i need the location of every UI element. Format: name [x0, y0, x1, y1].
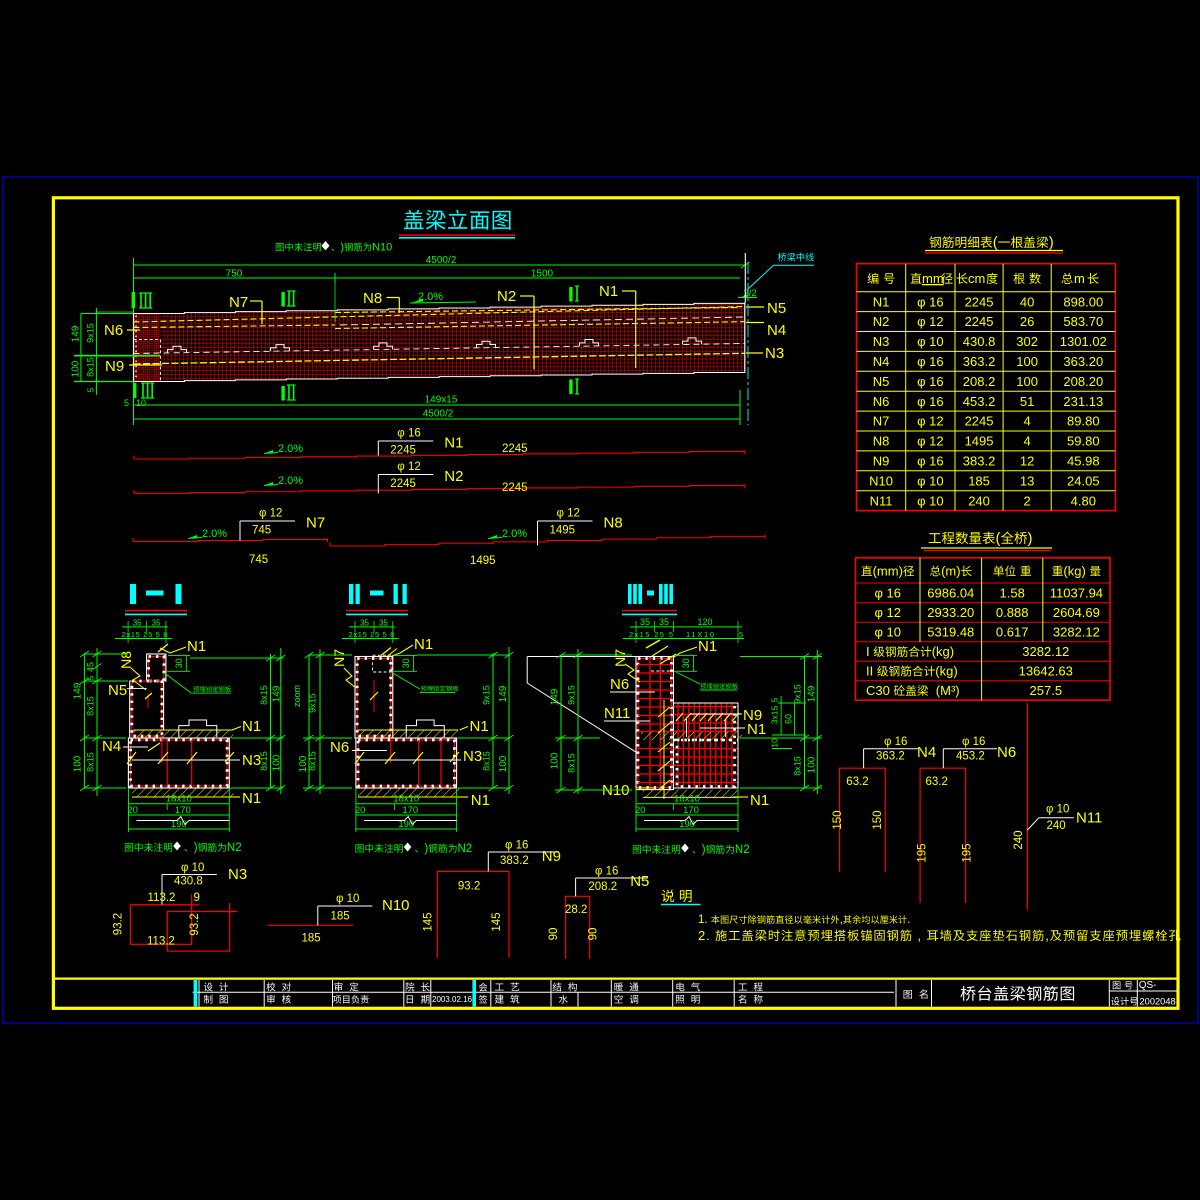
- svg-text:35: 35: [379, 619, 388, 628]
- svg-text:N1: N1: [698, 638, 717, 655]
- svg-text:zoom: zoom: [292, 685, 302, 707]
- svg-text:8x15: 8x15: [259, 685, 269, 705]
- svg-text:100: 100: [550, 752, 561, 769]
- svg-text:1.58: 1.58: [1000, 585, 1025, 600]
- svg-text:100: 100: [73, 755, 84, 772]
- svg-text:100: 100: [272, 754, 283, 771]
- svg-text:2604.69: 2604.69: [1053, 605, 1100, 620]
- svg-text:QS-: QS-: [1139, 980, 1157, 991]
- svg-text:N2: N2: [227, 842, 242, 854]
- svg-text:(M³): (M³): [936, 683, 960, 698]
- svg-text:13642.63: 13642.63: [1019, 663, 1073, 678]
- svg-text:363.2: 363.2: [876, 751, 905, 763]
- svg-text:φ 16: φ 16: [874, 585, 901, 600]
- svg-text:583.70: 583.70: [1063, 314, 1103, 329]
- svg-text:93.2: 93.2: [113, 913, 125, 935]
- svg-text:100: 100: [71, 360, 82, 377]
- svg-text:1301.02: 1301.02: [1060, 334, 1107, 349]
- svg-text:20: 20: [635, 805, 646, 816]
- svg-text:10: 10: [136, 398, 146, 408]
- svg-text:N6: N6: [610, 676, 629, 693]
- svg-text:745: 745: [252, 525, 271, 537]
- svg-text:N2: N2: [873, 314, 890, 329]
- svg-text:2.0%: 2.0%: [202, 528, 227, 540]
- svg-text:(kg): (kg): [935, 664, 957, 679]
- svg-text:φ 10: φ 10: [917, 493, 944, 508]
- svg-text:30: 30: [401, 658, 411, 668]
- svg-text:2245: 2245: [965, 314, 994, 329]
- svg-text:120: 120: [697, 617, 712, 627]
- svg-text:185: 185: [968, 473, 990, 488]
- svg-text:2: 2: [1024, 493, 1031, 508]
- svg-text:9x15: 9x15: [567, 685, 577, 705]
- svg-text:N11: N11: [1076, 810, 1102, 827]
- svg-text:63.2: 63.2: [926, 776, 948, 788]
- svg-text:N7: N7: [306, 515, 325, 532]
- svg-text:m: m: [1074, 271, 1085, 286]
- svg-text:100: 100: [498, 755, 509, 772]
- svg-text:φ 16: φ 16: [962, 736, 985, 748]
- svg-text:N3: N3: [228, 866, 247, 883]
- svg-text:100: 100: [1016, 374, 1038, 389]
- svg-text:898.00: 898.00: [1063, 294, 1103, 309]
- svg-text:149: 149: [807, 685, 818, 702]
- svg-text:257.5: 257.5: [1030, 683, 1063, 698]
- svg-text:5: 5: [87, 675, 96, 680]
- svg-text:60: 60: [783, 714, 793, 724]
- svg-text:195: 195: [917, 843, 929, 862]
- svg-text:φ 16: φ 16: [505, 840, 528, 852]
- svg-text:149: 149: [272, 685, 283, 702]
- svg-text:35: 35: [360, 619, 369, 628]
- svg-text:12: 12: [1020, 454, 1034, 469]
- svg-text:N8: N8: [873, 434, 890, 449]
- svg-text:,: ,: [1045, 928, 1049, 943]
- svg-text:149: 149: [73, 682, 84, 699]
- svg-text:170: 170: [175, 805, 191, 816]
- svg-text:8x15: 8x15: [793, 756, 803, 776]
- svg-text:N10: N10: [382, 897, 410, 914]
- svg-text:4500/2: 4500/2: [423, 409, 454, 420]
- svg-text:59.80: 59.80: [1067, 434, 1100, 449]
- svg-text:mm: mm: [922, 271, 944, 286]
- svg-text:): ): [424, 843, 428, 855]
- svg-text:N9: N9: [873, 454, 890, 469]
- svg-text:N1: N1: [471, 792, 490, 809]
- svg-text:N4: N4: [102, 738, 121, 755]
- svg-text:φ 12: φ 12: [259, 508, 282, 520]
- svg-text:113.2: 113.2: [147, 936, 175, 948]
- svg-text:N10: N10: [602, 782, 630, 799]
- svg-text:149: 149: [71, 325, 82, 342]
- svg-text:5319.48: 5319.48: [927, 624, 974, 639]
- svg-text:3282.12: 3282.12: [1022, 644, 1069, 659]
- svg-text:φ 10: φ 10: [181, 862, 204, 874]
- svg-text:I: I: [866, 644, 870, 659]
- svg-text:5: 5: [124, 398, 129, 408]
- svg-text:383.2: 383.2: [963, 454, 996, 469]
- svg-text:1.: 1.: [698, 914, 708, 926]
- svg-text:113.2: 113.2: [148, 892, 176, 904]
- svg-text:2245: 2245: [502, 482, 528, 494]
- svg-text:1500: 1500: [531, 269, 554, 280]
- svg-text:2.: 2.: [698, 928, 711, 943]
- svg-text:185: 185: [331, 911, 350, 923]
- svg-text:N3: N3: [463, 748, 482, 765]
- svg-text:2.0%: 2.0%: [278, 443, 303, 455]
- svg-text:N5: N5: [108, 682, 127, 699]
- svg-text:8x15: 8x15: [567, 753, 577, 773]
- svg-text:): ): [1028, 530, 1033, 547]
- svg-text:35: 35: [659, 617, 669, 627]
- svg-text:φ 16: φ 16: [884, 736, 907, 748]
- svg-text:N6: N6: [873, 394, 890, 409]
- svg-text:11037.94: 11037.94: [1050, 585, 1103, 600]
- svg-text:51: 51: [1020, 394, 1034, 409]
- svg-text:N10: N10: [869, 473, 893, 488]
- svg-text:149: 149: [498, 685, 509, 702]
- svg-text:φ 16: φ 16: [917, 374, 944, 389]
- svg-text:N10: N10: [372, 242, 392, 254]
- svg-text:): ): [340, 242, 344, 254]
- svg-text:N11: N11: [604, 705, 630, 722]
- svg-text:φ 12: φ 12: [397, 461, 420, 473]
- svg-text:2.0%: 2.0%: [278, 475, 303, 487]
- svg-text:4: 4: [1024, 434, 1031, 449]
- svg-text:φ 16: φ 16: [917, 294, 944, 309]
- svg-text:φ 12: φ 12: [917, 314, 944, 329]
- svg-text:6986.04: 6986.04: [927, 585, 974, 600]
- svg-text:(kg): (kg): [1063, 563, 1085, 578]
- svg-text:8x15: 8x15: [308, 751, 318, 771]
- svg-text:149: 149: [550, 688, 561, 705]
- svg-text:II: II: [866, 664, 873, 679]
- svg-text:(: (: [993, 234, 998, 251]
- svg-text:35: 35: [152, 619, 161, 628]
- svg-text:φ 12: φ 12: [557, 508, 580, 520]
- svg-text:N1: N1: [599, 283, 618, 300]
- svg-text:5: 5: [771, 697, 780, 702]
- svg-text:N1: N1: [242, 718, 261, 735]
- svg-text:383.2: 383.2: [500, 855, 529, 867]
- svg-text:302: 302: [1016, 334, 1038, 349]
- svg-text:9x15: 9x15: [86, 323, 96, 343]
- svg-text:30: 30: [681, 658, 691, 668]
- svg-text:5: 5: [739, 630, 743, 639]
- svg-text:4.80: 4.80: [1071, 493, 1096, 508]
- svg-text:N6: N6: [997, 744, 1016, 761]
- svg-text:N6: N6: [104, 322, 123, 339]
- svg-text:45: 45: [86, 662, 96, 672]
- svg-text:240: 240: [1047, 820, 1066, 832]
- svg-text:90: 90: [548, 928, 560, 941]
- svg-text:N1: N1: [187, 638, 206, 655]
- svg-text:4500/2: 4500/2: [426, 255, 457, 266]
- svg-text:18x10: 18x10: [674, 794, 700, 805]
- svg-text:745: 745: [249, 554, 268, 566]
- svg-text:φ 16: φ 16: [917, 454, 944, 469]
- svg-text:φ 12: φ 12: [874, 605, 901, 620]
- svg-text:N4: N4: [917, 744, 936, 761]
- svg-text:): ): [1049, 234, 1054, 251]
- svg-text:φ 12: φ 12: [917, 434, 944, 449]
- svg-text:): ): [194, 842, 198, 854]
- svg-text:φ 10: φ 10: [1046, 804, 1069, 816]
- svg-text:(: (: [996, 530, 1001, 547]
- svg-text:N8: N8: [118, 651, 134, 669]
- svg-text:231.13: 231.13: [1063, 394, 1103, 409]
- svg-text:35: 35: [133, 619, 142, 628]
- svg-text:N8: N8: [604, 515, 623, 532]
- svg-text:2002048: 2002048: [1140, 996, 1176, 1006]
- svg-text:208.2: 208.2: [588, 881, 617, 893]
- svg-text:100: 100: [1016, 354, 1038, 369]
- svg-text:430.8: 430.8: [174, 876, 203, 888]
- svg-text:N9: N9: [542, 848, 561, 865]
- svg-text:93.2: 93.2: [458, 881, 480, 893]
- svg-text:N11: N11: [870, 493, 893, 508]
- svg-text:150: 150: [872, 810, 884, 829]
- svg-text:63.2: 63.2: [846, 776, 868, 788]
- svg-text:): ): [702, 844, 706, 856]
- svg-text:8x15: 8x15: [86, 752, 96, 772]
- svg-text:N1: N1: [470, 718, 489, 735]
- svg-text:N2: N2: [444, 468, 463, 485]
- svg-text:240: 240: [1013, 830, 1025, 849]
- svg-text:9x15: 9x15: [308, 693, 318, 713]
- svg-text:2245: 2245: [965, 414, 994, 429]
- svg-text:150: 150: [832, 810, 844, 829]
- svg-text:N1: N1: [747, 721, 766, 738]
- svg-text:N1: N1: [873, 294, 890, 309]
- svg-text:185: 185: [302, 933, 321, 945]
- svg-text:18x10: 18x10: [393, 794, 419, 805]
- svg-text:453.2: 453.2: [963, 394, 996, 409]
- svg-text:2.0%: 2.0%: [502, 528, 527, 540]
- svg-text:2245: 2245: [965, 294, 994, 309]
- svg-text:9: 9: [194, 892, 200, 904]
- svg-text:N5: N5: [873, 374, 890, 389]
- svg-text:363.2: 363.2: [963, 354, 996, 369]
- svg-text:φ 16: φ 16: [917, 354, 944, 369]
- svg-text:N1: N1: [750, 792, 769, 809]
- svg-text:208.20: 208.20: [1063, 374, 1103, 389]
- svg-text:φ 16: φ 16: [397, 428, 420, 440]
- svg-text:cm: cm: [968, 271, 985, 286]
- svg-text:N4: N4: [767, 322, 786, 339]
- svg-text:8x15: 8x15: [482, 751, 492, 771]
- svg-text:1495: 1495: [965, 434, 994, 449]
- svg-text:35: 35: [640, 617, 650, 627]
- svg-text:3x15: 3x15: [770, 705, 780, 724]
- svg-text:N9: N9: [105, 358, 124, 375]
- svg-text:2245: 2245: [390, 478, 416, 490]
- svg-text:5: 5: [87, 387, 96, 392]
- svg-text:2245: 2245: [502, 443, 528, 455]
- svg-text:45.98: 45.98: [1067, 454, 1100, 469]
- svg-text:750: 750: [226, 269, 243, 280]
- svg-text:N7: N7: [331, 649, 347, 667]
- svg-text:208.2: 208.2: [963, 374, 996, 389]
- svg-text:φ 10: φ 10: [874, 624, 901, 639]
- svg-text:N2: N2: [497, 288, 516, 305]
- svg-text:N4: N4: [873, 354, 890, 369]
- svg-text:(kg): (kg): [932, 644, 954, 659]
- svg-text:26: 26: [1020, 314, 1034, 329]
- svg-text:4: 4: [1024, 414, 1031, 429]
- svg-text:240: 240: [968, 493, 990, 508]
- svg-text:100: 100: [807, 756, 818, 773]
- svg-text:24.05: 24.05: [1067, 473, 1100, 488]
- svg-text:2003.02.16: 2003.02.16: [432, 995, 473, 1004]
- svg-text:N3: N3: [873, 334, 890, 349]
- svg-text:453.2: 453.2: [956, 751, 985, 763]
- svg-text:N1: N1: [242, 790, 261, 807]
- svg-text:8x15: 8x15: [86, 696, 96, 716]
- svg-text:145: 145: [491, 912, 503, 931]
- svg-text:40: 40: [1020, 294, 1034, 309]
- svg-text:1495: 1495: [470, 555, 496, 567]
- svg-text:195: 195: [962, 843, 974, 862]
- svg-text:149x15: 149x15: [425, 395, 458, 406]
- svg-text:9x15: 9x15: [793, 684, 803, 704]
- svg-text:89.80: 89.80: [1067, 414, 1100, 429]
- svg-text:1495: 1495: [550, 525, 576, 537]
- svg-text:,: ,: [918, 928, 922, 943]
- svg-text:170: 170: [402, 805, 418, 816]
- svg-text:13: 13: [1020, 473, 1034, 488]
- svg-text:N7: N7: [873, 414, 890, 429]
- svg-text:(m): (m): [941, 563, 961, 578]
- svg-text:145: 145: [423, 912, 435, 931]
- svg-text:28.2: 28.2: [565, 904, 587, 916]
- svg-text:90: 90: [588, 928, 600, 941]
- svg-text:8x15: 8x15: [259, 751, 269, 771]
- svg-text:N1: N1: [414, 636, 433, 653]
- svg-text:.: .: [907, 914, 910, 926]
- svg-text:N5: N5: [630, 873, 649, 890]
- svg-text:2933.20: 2933.20: [927, 605, 974, 620]
- svg-text:430.8: 430.8: [963, 334, 996, 349]
- svg-text:20: 20: [127, 805, 138, 816]
- svg-text:C30: C30: [866, 683, 890, 698]
- svg-text:363.20: 363.20: [1063, 354, 1103, 369]
- svg-text:170: 170: [683, 805, 699, 816]
- svg-text:93.2: 93.2: [189, 913, 201, 935]
- svg-text:N8: N8: [363, 290, 382, 307]
- svg-text:,: ,: [840, 914, 843, 926]
- svg-text:N2: N2: [735, 844, 750, 856]
- svg-text:18x10: 18x10: [166, 794, 192, 805]
- svg-text:N6: N6: [330, 739, 349, 756]
- svg-text:N7: N7: [229, 294, 248, 311]
- svg-text:φ 10: φ 10: [336, 893, 359, 905]
- svg-text:8x15: 8x15: [86, 357, 96, 377]
- svg-text:30: 30: [174, 658, 184, 668]
- svg-text:(mm): (mm): [873, 563, 903, 578]
- svg-text:20: 20: [355, 805, 366, 816]
- svg-text:φ 12: φ 12: [917, 414, 944, 429]
- svg-text:N5: N5: [767, 300, 786, 317]
- svg-text:0.617: 0.617: [996, 624, 1029, 639]
- svg-text:φ 10: φ 10: [917, 473, 944, 488]
- svg-text:N2: N2: [458, 843, 473, 855]
- svg-text:10: 10: [770, 738, 780, 748]
- svg-text:3282.12: 3282.12: [1053, 624, 1100, 639]
- svg-text:9x15: 9x15: [482, 685, 492, 705]
- svg-text:φ 10: φ 10: [917, 334, 944, 349]
- svg-text:φ 16: φ 16: [917, 394, 944, 409]
- svg-text:0.888: 0.888: [996, 605, 1029, 620]
- svg-text:2245: 2245: [390, 445, 416, 457]
- svg-text:N3: N3: [765, 345, 784, 362]
- svg-text:N1: N1: [444, 435, 463, 452]
- svg-text:φ 16: φ 16: [595, 866, 618, 878]
